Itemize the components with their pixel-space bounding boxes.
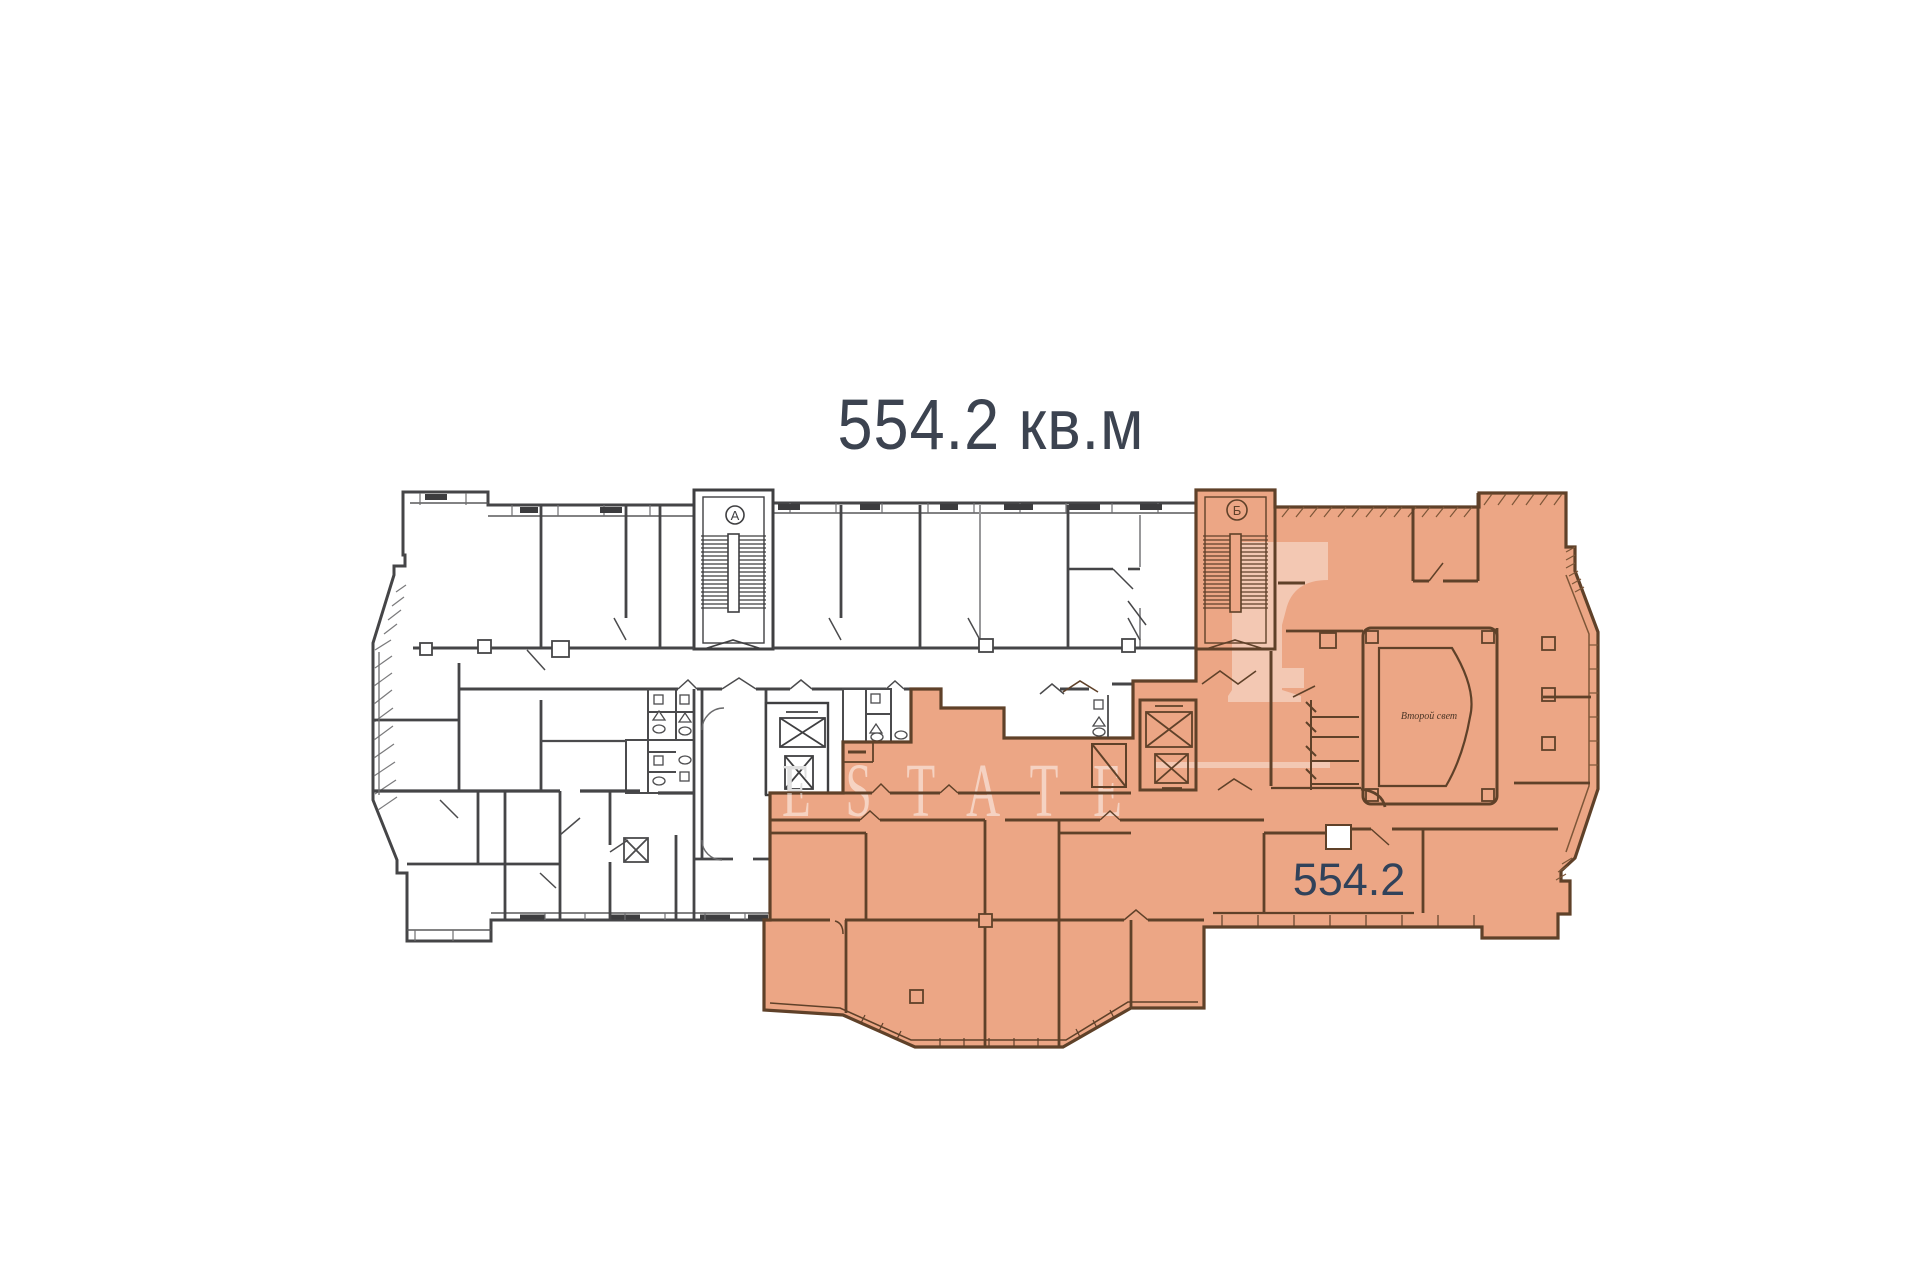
svg-text:Б: Б	[1233, 503, 1242, 518]
svg-text:А: А	[731, 508, 740, 523]
svg-text:554.2 кв.м: 554.2 кв.м	[838, 385, 1145, 464]
svg-text:554.2: 554.2	[1293, 854, 1406, 905]
svg-text:Второй свет: Второй свет	[1401, 711, 1457, 722]
